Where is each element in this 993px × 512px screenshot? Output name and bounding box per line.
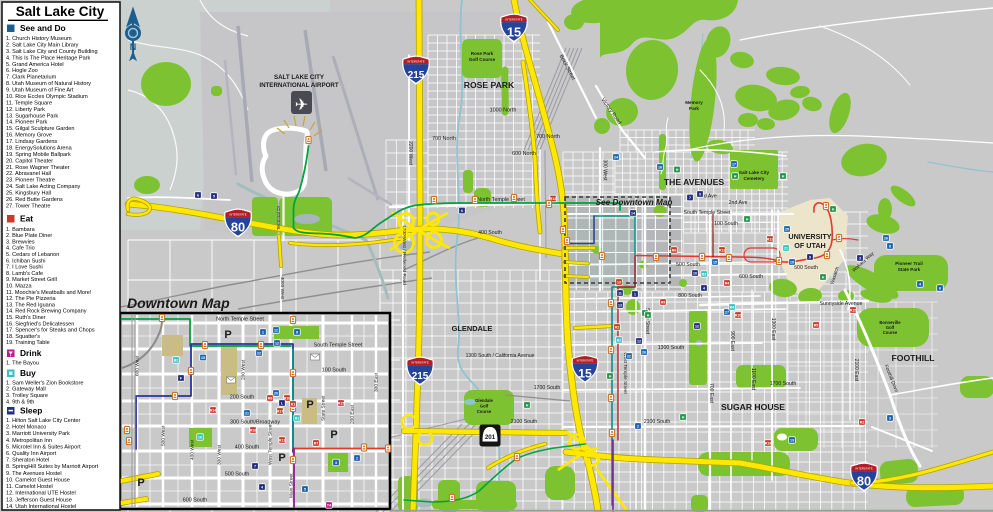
svg-text:26: 26 xyxy=(642,350,646,354)
svg-text:4: 4 xyxy=(261,485,263,489)
svg-text:H: H xyxy=(822,275,825,279)
svg-text:R4: R4 xyxy=(725,281,730,285)
svg-text:2: 2 xyxy=(356,456,358,460)
svg-text:Main Street: Main Street xyxy=(289,473,295,498)
svg-text:R15: R15 xyxy=(850,308,857,312)
svg-text:22: 22 xyxy=(627,354,631,358)
svg-text:B4: B4 xyxy=(730,305,735,309)
svg-text:H: H xyxy=(682,415,685,419)
svg-text:21: 21 xyxy=(245,411,249,415)
svg-text:THE AVENUES: THE AVENUES xyxy=(664,177,724,187)
svg-text:201: 201 xyxy=(485,434,496,441)
svg-text:1100 East: 1100 East xyxy=(750,368,756,391)
svg-text:4: 4 xyxy=(703,286,705,290)
svg-text:H: H xyxy=(609,374,612,378)
svg-text:15: 15 xyxy=(201,356,205,360)
svg-text:P: P xyxy=(306,399,313,411)
svg-text:2nd Ave: 2nd Ave xyxy=(729,200,748,206)
svg-text:7: 7 xyxy=(254,464,256,468)
svg-text:300 West: 300 West xyxy=(602,159,608,181)
svg-text:R10: R10 xyxy=(735,313,742,317)
svg-text:600 North: 600 North xyxy=(512,151,536,157)
svg-text:25: 25 xyxy=(785,227,789,231)
svg-text:400 West: 400 West xyxy=(190,439,196,460)
svg-text:Drink: Drink xyxy=(20,348,42,358)
svg-text:R12: R12 xyxy=(767,237,774,241)
svg-text:200 West: 200 West xyxy=(241,359,247,380)
svg-text:State Park: State Park xyxy=(898,267,921,272)
svg-text:B2: B2 xyxy=(174,358,179,362)
svg-text:South Temple Street: South Temple Street xyxy=(314,343,363,349)
svg-text:400 South: 400 South xyxy=(235,445,260,451)
svg-text:100 South: 100 South xyxy=(322,368,347,374)
svg-text:6: 6 xyxy=(197,193,199,197)
svg-text:12: 12 xyxy=(275,341,279,345)
svg-text:Downtown Map: Downtown Map xyxy=(127,295,230,311)
svg-text:✈: ✈ xyxy=(295,97,308,114)
svg-text:See and Do: See and Do xyxy=(20,23,66,33)
svg-text:R1: R1 xyxy=(291,402,296,406)
svg-text:Course: Course xyxy=(883,330,898,335)
svg-text:300 East: 300 East xyxy=(374,372,380,392)
svg-text:Terminal Dr: Terminal Dr xyxy=(276,205,282,230)
svg-text:N: N xyxy=(130,42,137,52)
svg-text:R14: R14 xyxy=(210,408,217,412)
svg-text:7: 7 xyxy=(689,196,691,200)
svg-text:Course: Course xyxy=(477,409,492,414)
svg-text:300 West: 300 West xyxy=(217,444,223,465)
svg-text:Sleep: Sleep xyxy=(20,406,42,416)
svg-text:9: 9 xyxy=(699,192,701,196)
svg-text:6: 6 xyxy=(939,286,941,290)
svg-text:Pioneer Trail: Pioneer Trail xyxy=(895,261,923,266)
svg-text:1700 South: 1700 South xyxy=(534,385,561,391)
svg-text:North Temple Street: North Temple Street xyxy=(216,317,264,323)
svg-text:10: 10 xyxy=(693,271,697,275)
svg-text:B1: B1 xyxy=(295,416,300,420)
svg-text:Golf: Golf xyxy=(480,404,489,409)
svg-text:12: 12 xyxy=(695,324,699,328)
svg-text:80: 80 xyxy=(231,220,245,235)
svg-text:1300 South / California Avenue: 1300 South / California Avenue xyxy=(466,353,535,359)
svg-text:100 South: 100 South xyxy=(714,221,738,227)
svg-text:R8: R8 xyxy=(268,396,273,400)
svg-text:UNIVERSITY: UNIVERSITY xyxy=(788,232,831,241)
svg-text:26: 26 xyxy=(884,236,888,240)
svg-text:B3: B3 xyxy=(702,272,707,276)
svg-text:H: H xyxy=(832,207,835,211)
svg-text:800 South: 800 South xyxy=(678,293,702,299)
svg-text:R17: R17 xyxy=(277,409,284,413)
svg-text:20: 20 xyxy=(274,391,278,395)
svg-text:16: 16 xyxy=(658,165,662,169)
svg-text:Memory: Memory xyxy=(685,100,703,105)
svg-text:R11: R11 xyxy=(279,438,285,442)
svg-text:R19: R19 xyxy=(765,441,772,445)
svg-text:R2: R2 xyxy=(860,420,865,424)
svg-text:700 East: 700 East xyxy=(708,383,714,403)
svg-text:R5: R5 xyxy=(814,323,819,327)
svg-text:15: 15 xyxy=(578,366,592,380)
svg-text:R9: R9 xyxy=(661,300,666,304)
svg-text:P: P xyxy=(330,429,337,441)
svg-text:2100 South: 2100 South xyxy=(511,419,538,425)
svg-text:6: 6 xyxy=(461,209,463,213)
svg-text:4: 4 xyxy=(919,282,921,286)
svg-text:INTERNATIONAL AIRPORT: INTERNATIONAL AIRPORT xyxy=(259,82,339,89)
svg-text:1. The Bayou: 1. The Bayou xyxy=(6,360,39,366)
svg-text:17: 17 xyxy=(732,162,736,166)
svg-text:R6: R6 xyxy=(672,248,677,252)
svg-text:H: H xyxy=(526,403,529,407)
svg-text:INTERSTATE: INTERSTATE xyxy=(229,212,246,216)
svg-text:H: H xyxy=(734,174,737,178)
svg-text:12: 12 xyxy=(274,328,278,332)
svg-text:2200 West: 2200 West xyxy=(407,141,413,165)
svg-text:H: H xyxy=(746,217,749,221)
svg-text:Golf Course: Golf Course xyxy=(469,57,496,62)
svg-text:80: 80 xyxy=(857,474,871,489)
svg-text:H: H xyxy=(647,313,650,317)
svg-text:500 West: 500 West xyxy=(161,425,167,446)
svg-text:1: 1 xyxy=(634,292,636,296)
svg-text:200 South: 200 South xyxy=(230,395,255,401)
svg-text:12: 12 xyxy=(637,339,641,343)
svg-text:3: 3 xyxy=(859,256,861,260)
svg-text:9: 9 xyxy=(809,255,811,259)
svg-text:INTERSTATE: INTERSTATE xyxy=(407,59,424,63)
svg-text:700 North: 700 North xyxy=(536,134,560,140)
svg-text:4000 West: 4000 West xyxy=(279,277,285,301)
svg-text:R15: R15 xyxy=(338,401,345,405)
svg-text:P: P xyxy=(278,452,285,464)
svg-text:14: 14 xyxy=(631,211,635,215)
svg-text:North Temple Street: North Temple Street xyxy=(477,197,525,203)
svg-text:16: 16 xyxy=(198,435,202,439)
svg-text:FOOTHILL: FOOTHILL xyxy=(892,353,935,363)
svg-text:Park: Park xyxy=(689,106,699,111)
svg-text:15: 15 xyxy=(507,25,521,40)
svg-text:SALT LAKE CITY: SALT LAKE CITY xyxy=(274,74,325,81)
svg-text:INTERSTATE: INTERSTATE xyxy=(411,360,428,364)
svg-text:P: P xyxy=(224,329,231,341)
svg-text:Buy: Buy xyxy=(20,368,36,378)
svg-text:13: 13 xyxy=(618,303,622,307)
svg-text:P: P xyxy=(137,477,144,489)
svg-text:1700 South: 1700 South xyxy=(770,381,797,387)
svg-text:T4: T4 xyxy=(327,503,331,507)
svg-text:2100 East: 2100 East xyxy=(853,359,859,382)
svg-text:Salt Lake City: Salt Lake City xyxy=(16,4,105,19)
svg-text:15: 15 xyxy=(713,260,717,264)
svg-text:Eat: Eat xyxy=(20,214,33,224)
svg-text:INTERSTATE: INTERSTATE xyxy=(577,359,594,363)
svg-text:5: 5 xyxy=(304,487,306,491)
svg-text:500 South: 500 South xyxy=(794,265,818,271)
svg-text:600 South: 600 South xyxy=(739,274,763,280)
svg-text:3: 3 xyxy=(889,416,891,420)
svg-text:200 East: 200 East xyxy=(350,404,356,424)
svg-text:B2: B2 xyxy=(617,338,622,342)
svg-text:H: H xyxy=(676,168,679,172)
svg-text:ROSE PARK: ROSE PARK xyxy=(464,80,515,90)
svg-text:Glendale: Glendale xyxy=(475,398,493,403)
svg-text:13: 13 xyxy=(617,280,621,284)
svg-text:600 South: 600 South xyxy=(183,498,208,504)
svg-text:R18: R18 xyxy=(250,428,257,432)
svg-text:215: 215 xyxy=(408,70,425,81)
svg-text:SUGAR HOUSE: SUGAR HOUSE xyxy=(721,402,785,412)
svg-text:Sunnyside Avenue: Sunnyside Avenue xyxy=(820,301,863,307)
svg-text:24: 24 xyxy=(614,155,618,159)
svg-text:13: 13 xyxy=(790,438,794,442)
svg-text:R12: R12 xyxy=(719,248,726,252)
svg-text:500 South: 500 South xyxy=(225,472,250,478)
svg-text:1300 East: 1300 East xyxy=(770,318,776,341)
svg-text:8: 8 xyxy=(296,330,298,334)
svg-text:600 West: 600 West xyxy=(135,355,141,376)
svg-text:215: 215 xyxy=(412,371,429,382)
svg-text:H: H xyxy=(782,174,785,178)
svg-text:Cemetery: Cemetery xyxy=(744,176,765,181)
svg-text:2100 South: 2100 South xyxy=(644,419,671,425)
svg-text:700 North: 700 North xyxy=(432,136,456,142)
svg-text:22: 22 xyxy=(257,351,261,355)
svg-text:See Downtown Map: See Downtown Map xyxy=(596,198,673,207)
svg-text:1300 South: 1300 South xyxy=(658,345,685,351)
svg-text:OF UTAH: OF UTAH xyxy=(794,241,825,250)
svg-text:State Street: State Street xyxy=(321,395,327,421)
svg-text:West Temple Street: West Temple Street xyxy=(268,423,274,465)
svg-text:1700 West / Redwood Road: 1700 West / Redwood Road xyxy=(401,225,407,285)
svg-text:900 East: 900 East xyxy=(729,331,735,351)
svg-text:1: 1 xyxy=(262,330,264,334)
svg-text:5: 5 xyxy=(213,194,215,198)
svg-text:10: 10 xyxy=(790,260,794,264)
svg-text:27: 27 xyxy=(725,310,729,314)
svg-text:R7: R7 xyxy=(314,441,319,445)
svg-text:3: 3 xyxy=(335,461,337,465)
svg-text:400 South: 400 South xyxy=(478,230,502,236)
svg-text:R2: R2 xyxy=(615,325,620,329)
svg-text:8: 8 xyxy=(889,244,891,248)
svg-text:1000 North: 1000 North xyxy=(490,108,517,114)
svg-text:11: 11 xyxy=(618,291,622,295)
svg-text:2: 2 xyxy=(637,424,639,428)
svg-text:21: 21 xyxy=(784,246,788,250)
svg-text:INTERSTATE: INTERSTATE xyxy=(505,17,522,21)
svg-text:South Temple Street: South Temple Street xyxy=(684,210,731,216)
svg-text:GLENDALE: GLENDALE xyxy=(452,324,493,333)
svg-text:Rose Park: Rose Park xyxy=(471,51,494,56)
svg-text:INTERSTATE: INTERSTATE xyxy=(855,466,872,470)
svg-text:500 South: 500 South xyxy=(676,262,700,268)
svg-text:Salt Lake City: Salt Lake City xyxy=(739,170,770,175)
